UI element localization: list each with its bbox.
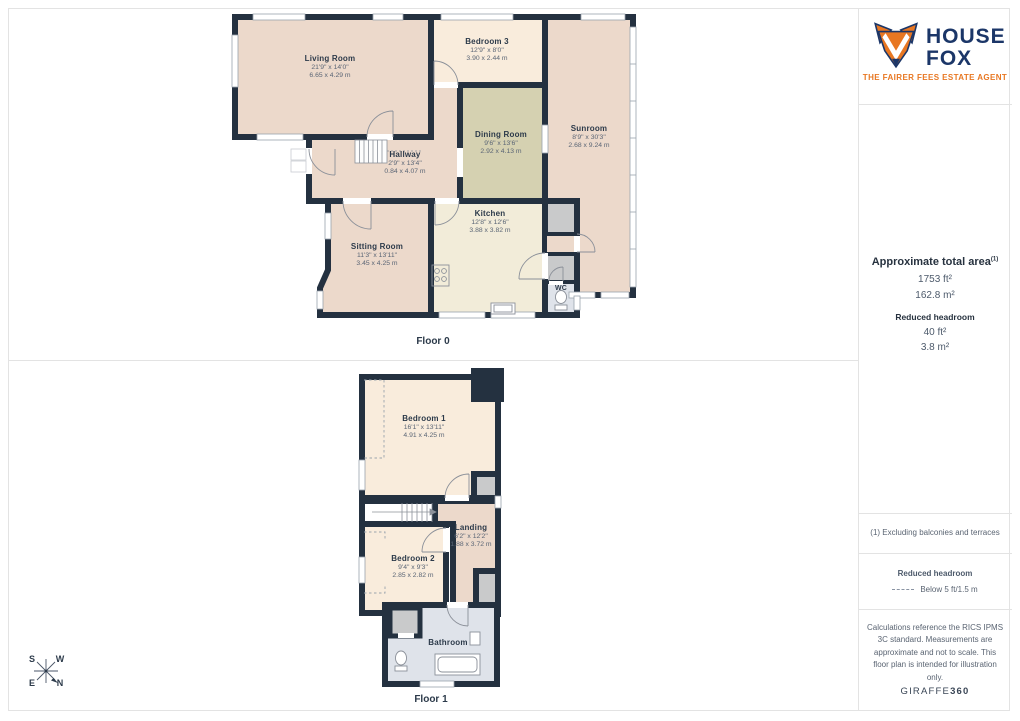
disclaimer-divider bbox=[858, 609, 1012, 610]
logo-word-fox: FOX bbox=[926, 48, 972, 69]
room-bedroom3 bbox=[431, 17, 545, 85]
compass-south-label: S bbox=[29, 654, 35, 664]
legend-title: Reduced headroom bbox=[858, 569, 1012, 578]
room-dining bbox=[460, 85, 545, 201]
giraffe360-credit: GIRAFFE360 bbox=[858, 686, 1012, 697]
logo-tagline: THE FAIRER FEES ESTATE AGENT bbox=[858, 73, 1012, 82]
toilet-icon-wc bbox=[555, 291, 567, 311]
legend-divider bbox=[858, 553, 1012, 554]
total-area-m: 162.8 m² bbox=[858, 290, 1012, 301]
floor1-drawing bbox=[350, 362, 520, 702]
roof-notch bbox=[471, 368, 504, 402]
porch-steps bbox=[291, 149, 306, 172]
reduced-headroom-title: Reduced headroom bbox=[858, 312, 1012, 322]
legend-row: Below 5 ft/1.5 m bbox=[858, 585, 1012, 594]
reduced-headroom-ft: 40 ft² bbox=[858, 327, 1012, 338]
sink-icon bbox=[491, 303, 515, 314]
total-area-ft: 1753 ft² bbox=[858, 274, 1012, 285]
floor0-caption: Floor 0 bbox=[416, 336, 449, 347]
shelf-icon bbox=[470, 632, 480, 645]
floor-panel-divider bbox=[8, 360, 858, 361]
compass-east-label: E bbox=[29, 678, 35, 688]
compass-north-label: N bbox=[57, 678, 64, 688]
compass-star-icon bbox=[18, 642, 74, 698]
closet-b bbox=[476, 571, 498, 606]
total-area-title: Approximate total area(1) bbox=[858, 256, 1012, 268]
room-sitting bbox=[320, 201, 431, 315]
compass-rose: S W E N bbox=[18, 642, 74, 698]
stairwell bbox=[362, 501, 435, 524]
area-footnote: (1) Excluding balconies and terraces bbox=[858, 528, 1012, 537]
room-bedroom2 bbox=[362, 524, 446, 613]
compass-west-label: W bbox=[56, 654, 65, 664]
bathtub-icon bbox=[435, 654, 480, 675]
reduced-headroom-dash-icon bbox=[892, 589, 914, 590]
reduced-headroom-m: 3.8 m² bbox=[858, 342, 1012, 353]
toilet-icon-bathroom bbox=[395, 651, 407, 671]
closet-a bbox=[474, 474, 498, 498]
shower bbox=[390, 608, 420, 636]
room-living bbox=[235, 17, 431, 137]
floor0-drawing bbox=[225, 3, 645, 348]
logo-word-house: HOUSE bbox=[926, 26, 1006, 47]
logo-section-divider bbox=[858, 104, 1012, 105]
disclaimer-text: Calculations reference the RICS IPMS 3C … bbox=[866, 622, 1004, 684]
housefox-fox-icon bbox=[872, 20, 920, 72]
room-kitchen bbox=[431, 201, 545, 315]
footnote-divider bbox=[858, 513, 1012, 514]
floorplan-page: Living Room 21'9" x 14'0" 6.65 x 4.29 m … bbox=[0, 0, 1020, 721]
floor1-caption: Floor 1 bbox=[414, 694, 447, 705]
footnote-ref: (1) bbox=[991, 256, 998, 262]
sidebar-divider bbox=[858, 8, 859, 711]
